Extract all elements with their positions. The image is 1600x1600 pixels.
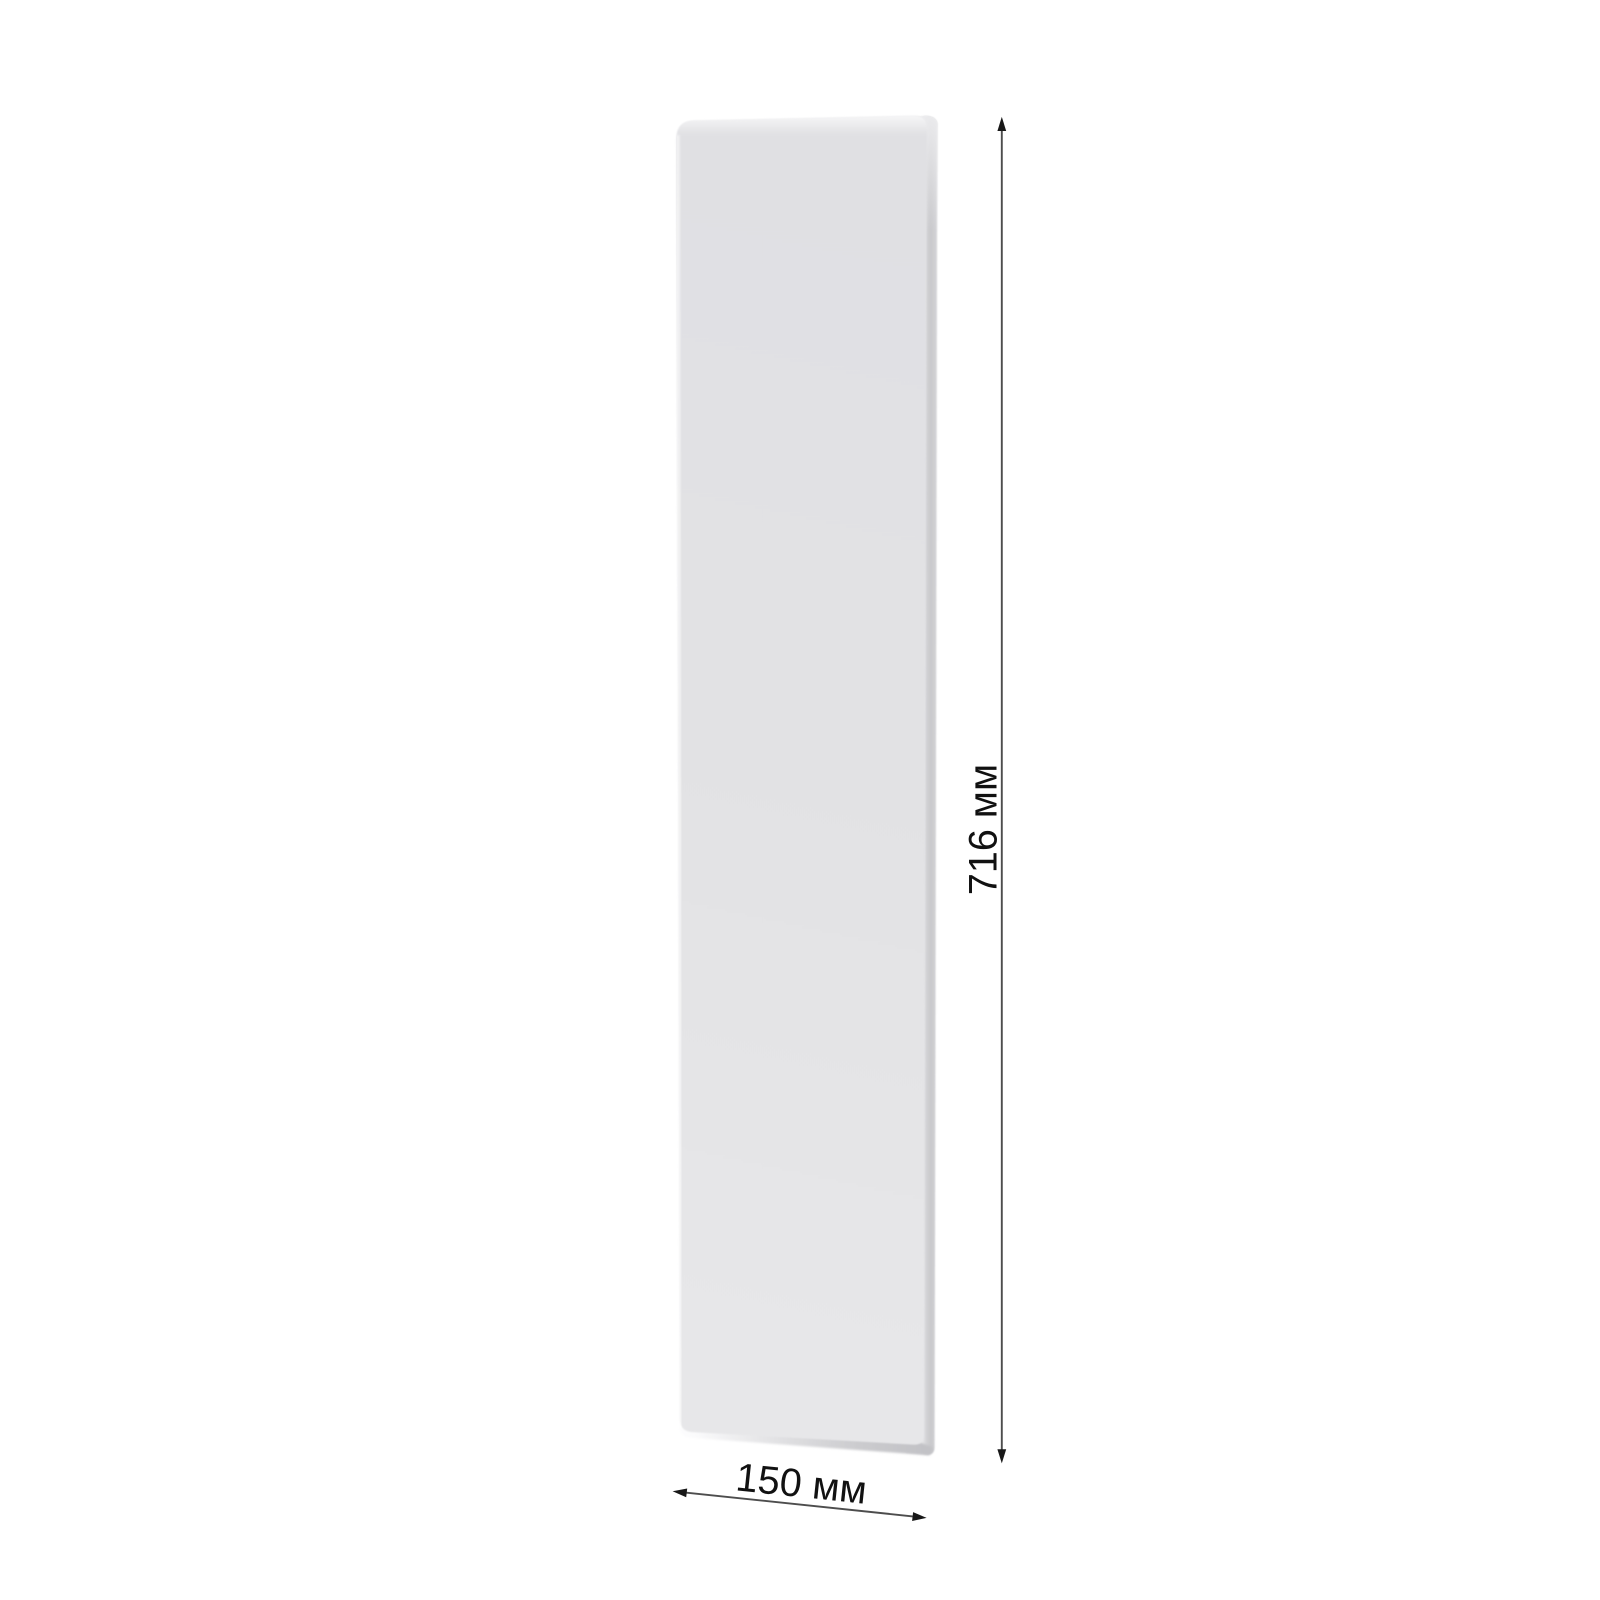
svg-text:716 мм: 716 мм: [962, 764, 1006, 895]
svg-text:150 мм: 150 мм: [734, 1455, 869, 1512]
